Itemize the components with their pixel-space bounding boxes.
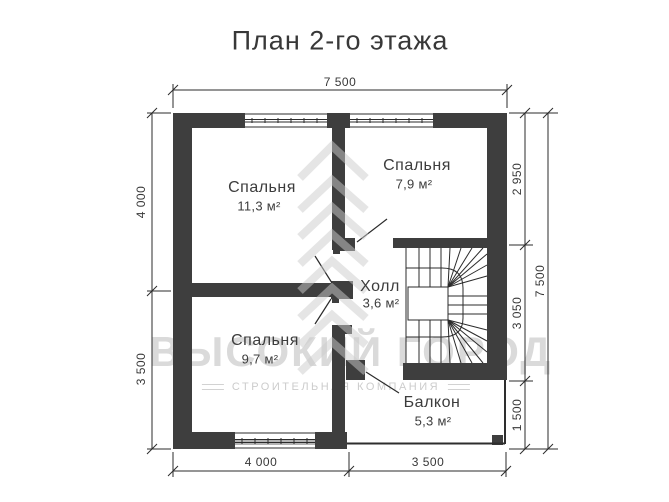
room-label-bedroom2-name: Спальня bbox=[383, 157, 451, 175]
room-label-bedroom1-name: Спальня bbox=[228, 179, 296, 197]
labels: План 2-го этажа Спальня 11,3 м² Спальня … bbox=[0, 0, 669, 502]
floor-plan-page: ВЫСОКИЙ ГОРОД СТРОИТЕЛЬНАЯ КОМПАНИЯ bbox=[0, 0, 669, 502]
dimension-label-top: 7 500 bbox=[324, 75, 357, 89]
page-title: План 2-го этажа bbox=[232, 26, 449, 57]
dimension-label-right-total: 7 500 bbox=[533, 265, 547, 298]
room-label-bedroom2-area: 7,9 м² bbox=[396, 177, 433, 192]
dimension-label-bottom-right: 3 500 bbox=[412, 455, 445, 469]
room-label-balcony-area: 5,3 м² bbox=[415, 414, 452, 429]
dimension-label-right-top: 2 950 bbox=[510, 163, 524, 196]
dimension-label-bottom-left: 4 000 bbox=[245, 455, 278, 469]
dimension-label-left-bottom: 3 500 bbox=[134, 353, 148, 386]
dimension-label-left-top: 4 000 bbox=[134, 186, 148, 219]
room-label-balcony-name: Балкон bbox=[404, 394, 461, 412]
room-label-hall-name: Холл bbox=[360, 278, 400, 296]
room-label-hall-area: 3,6 м² bbox=[363, 296, 400, 311]
dimension-label-right-bottom: 1 500 bbox=[510, 399, 524, 432]
room-label-bedroom3-area: 9,7 м² bbox=[242, 352, 279, 367]
dimension-label-right-middle: 3 050 bbox=[510, 297, 524, 330]
room-label-bedroom1-area: 11,3 м² bbox=[237, 199, 280, 214]
room-label-bedroom3-name: Спальня bbox=[231, 332, 299, 350]
